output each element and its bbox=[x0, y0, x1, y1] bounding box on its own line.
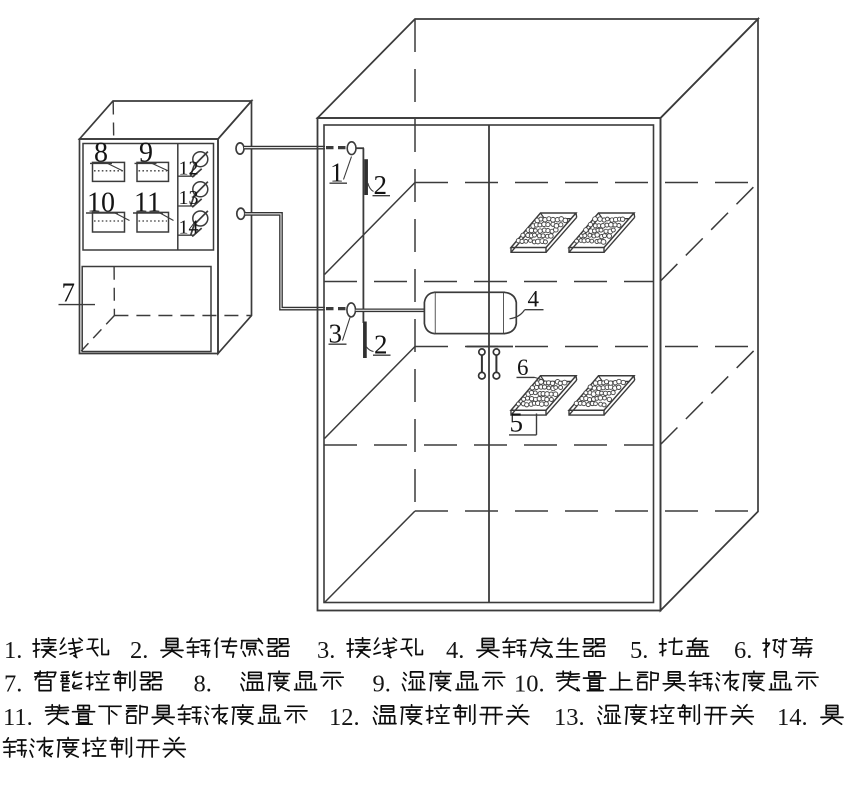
svg-text:4: 4 bbox=[528, 287, 540, 312]
svg-text:6.: 6. bbox=[734, 637, 752, 664]
svg-text:5.: 5. bbox=[630, 637, 648, 664]
svg-text:10.: 10. bbox=[514, 671, 545, 698]
svg-text:7.: 7. bbox=[4, 671, 22, 698]
svg-text:11.: 11. bbox=[3, 704, 33, 731]
svg-text:13.: 13. bbox=[554, 704, 585, 731]
svg-text:6: 6 bbox=[517, 355, 529, 380]
svg-text:11: 11 bbox=[134, 188, 161, 219]
svg-text:7: 7 bbox=[62, 278, 76, 308]
svg-text:10: 10 bbox=[87, 188, 115, 219]
svg-text:1.: 1. bbox=[4, 637, 22, 664]
svg-text:4.: 4. bbox=[446, 637, 464, 664]
svg-text:5: 5 bbox=[510, 407, 524, 437]
svg-text:14.: 14. bbox=[777, 704, 808, 731]
svg-text:2.: 2. bbox=[130, 637, 148, 664]
svg-text:3.: 3. bbox=[317, 637, 335, 664]
svg-text:9.: 9. bbox=[373, 671, 391, 698]
svg-text:8.: 8. bbox=[194, 671, 212, 698]
svg-text:12.: 12. bbox=[329, 704, 360, 731]
